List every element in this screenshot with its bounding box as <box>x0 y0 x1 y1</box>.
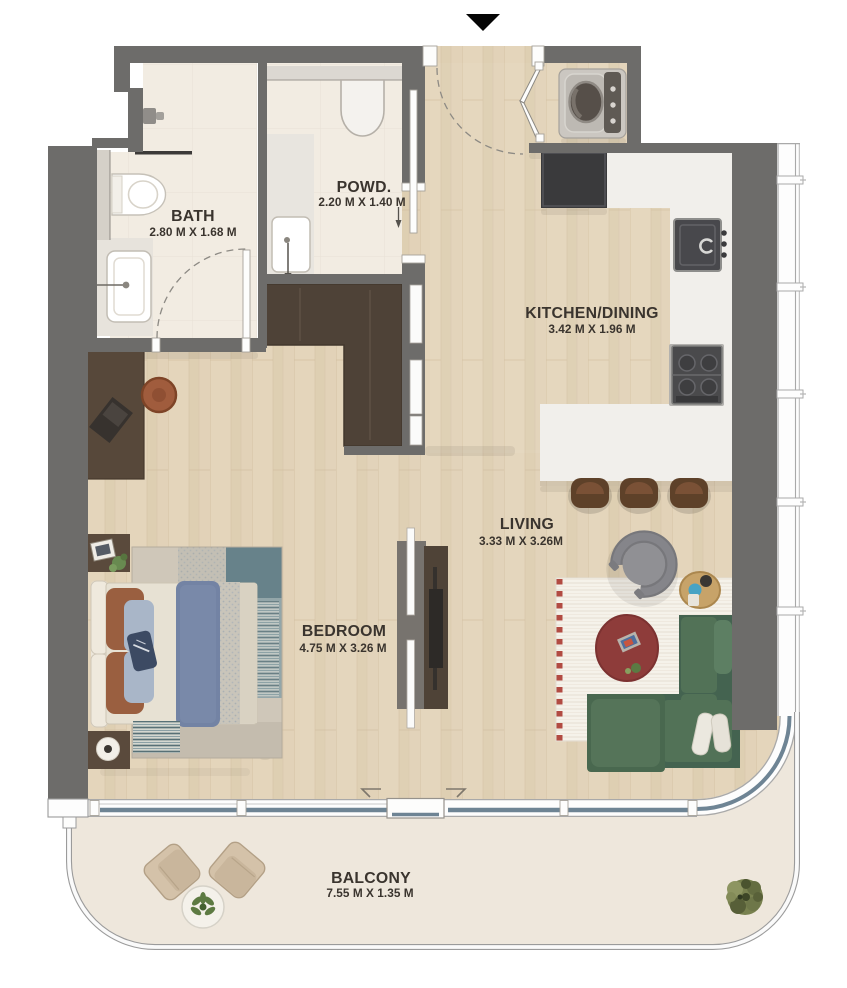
svg-text:3.42 M X 1.96 M: 3.42 M X 1.96 M <box>548 322 635 336</box>
svg-text:7.55 M X 1.35 M: 7.55 M X 1.35 M <box>326 886 413 900</box>
svg-text:3.33 M X 3.26M: 3.33 M X 3.26M <box>479 534 563 548</box>
svg-text:LIVING: LIVING <box>500 516 554 533</box>
svg-text:BATH: BATH <box>171 208 215 225</box>
svg-text:2.20 M X 1.40 M: 2.20 M X 1.40 M <box>318 195 405 209</box>
svg-text:4.75 M X 3.26 M: 4.75 M X 3.26 M <box>299 641 386 655</box>
svg-text:POWD.: POWD. <box>337 179 392 196</box>
svg-text:2.80 M X 1.68 M: 2.80 M X 1.68 M <box>149 225 236 239</box>
svg-text:BEDROOM: BEDROOM <box>302 623 386 640</box>
svg-text:BALCONY: BALCONY <box>331 870 411 887</box>
svg-text:KITCHEN/DINING: KITCHEN/DINING <box>525 305 658 322</box>
